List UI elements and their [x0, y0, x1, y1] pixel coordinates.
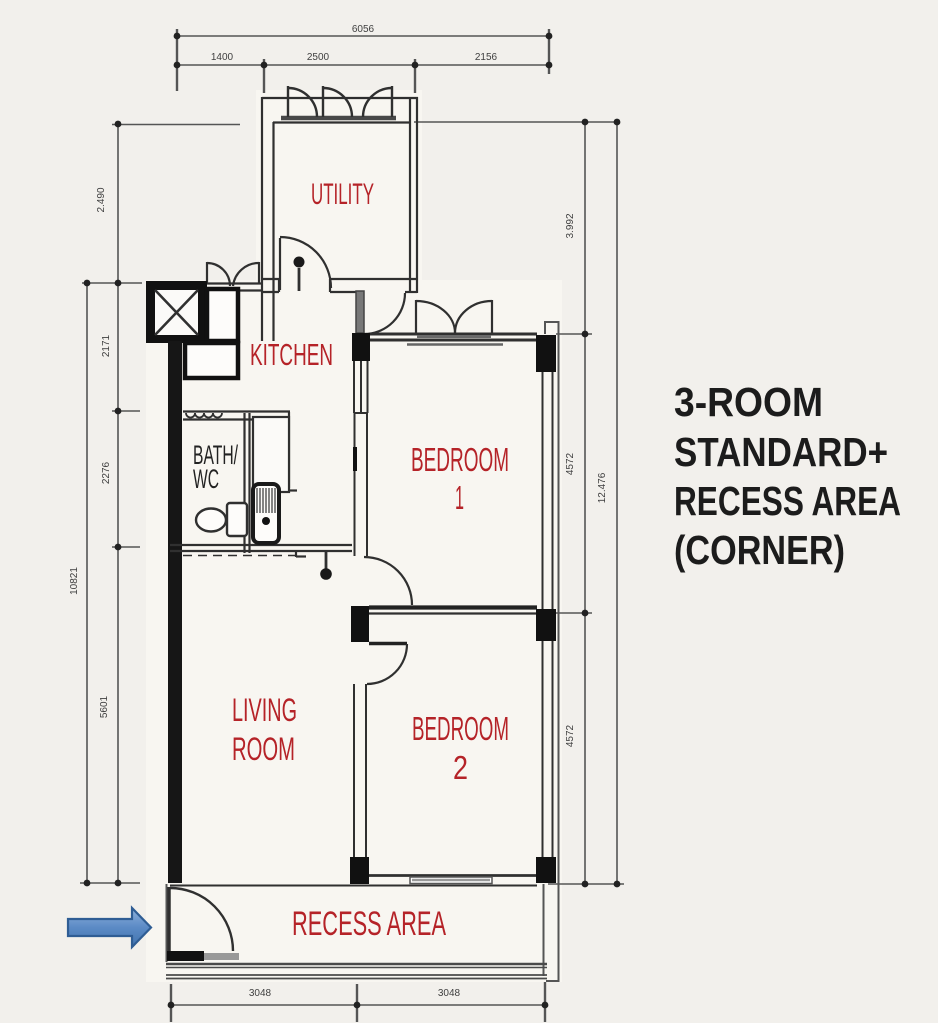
- svg-text:3.992: 3.992: [565, 213, 576, 238]
- svg-text:1400: 1400: [211, 52, 234, 63]
- svg-text:WC: WC: [193, 464, 219, 494]
- svg-text:KITCHEN: KITCHEN: [250, 337, 333, 372]
- svg-text:LIVING: LIVING: [232, 692, 297, 728]
- svg-text:3-ROOM: 3-ROOM: [674, 379, 823, 425]
- svg-text:BEDROOM: BEDROOM: [411, 441, 509, 478]
- svg-text:RECESS AREA: RECESS AREA: [292, 905, 446, 943]
- svg-text:4572: 4572: [565, 452, 576, 475]
- svg-text:4572: 4572: [565, 724, 576, 747]
- svg-text:2: 2: [453, 749, 468, 786]
- svg-text:2276: 2276: [101, 461, 112, 484]
- svg-text:12.476: 12.476: [597, 472, 608, 503]
- svg-text:1: 1: [455, 479, 464, 516]
- svg-text:2171: 2171: [101, 334, 112, 357]
- svg-text:(CORNER): (CORNER): [674, 527, 845, 573]
- svg-text:3048: 3048: [438, 988, 461, 999]
- svg-text:UTILITY: UTILITY: [311, 178, 374, 211]
- svg-text:2156: 2156: [475, 52, 498, 63]
- svg-text:ROOM: ROOM: [232, 731, 295, 767]
- svg-text:10821: 10821: [69, 567, 80, 595]
- svg-text:2500: 2500: [307, 52, 330, 63]
- svg-text:2.490: 2.490: [96, 187, 107, 212]
- svg-text:5601: 5601: [99, 695, 110, 718]
- svg-text:STANDARD+: STANDARD+: [674, 429, 888, 475]
- svg-text:RECESS AREA: RECESS AREA: [674, 478, 901, 524]
- svg-text:6056: 6056: [352, 24, 375, 35]
- svg-text:BEDROOM: BEDROOM: [412, 710, 509, 747]
- svg-text:3048: 3048: [249, 988, 272, 999]
